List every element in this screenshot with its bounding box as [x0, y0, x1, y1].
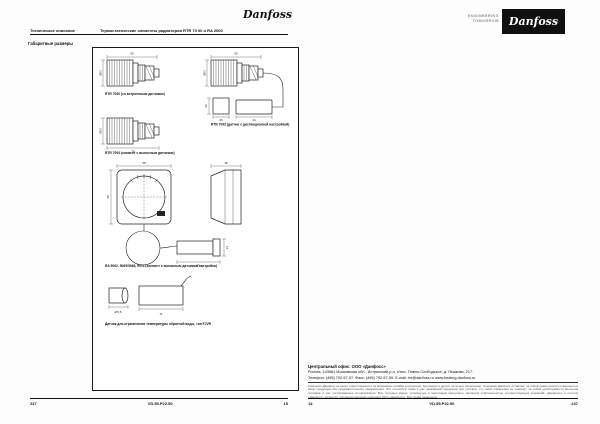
figure-return-sensor-caption: Датчик для ограничения температуры обрат… — [105, 322, 212, 326]
dim-label: Ø 5,5 — [115, 310, 122, 314]
figure-rtr7094-drawing: Ø53 74 — [98, 118, 159, 154]
danfoss-logo: Danfoss — [243, 8, 292, 21]
page-number: 247 — [571, 401, 578, 406]
drawing-frame: 80 Ø53 RTR 7090 (со встроенным датчиком)… — [92, 47, 299, 391]
dim-label: 58 — [142, 161, 146, 165]
figure-ra5060-caption: RA 5062, 5065/5068, 5074 (элемент с выно… — [105, 264, 217, 268]
office-address-block: Центральный офис: ООО «Данфосс» Россия, … — [308, 364, 578, 381]
dimension-drawings: 80 Ø53 RTR 7090 (со встроенным датчиком)… — [93, 48, 296, 388]
dim-label: 26 — [219, 118, 223, 122]
sensor-wire — [181, 276, 191, 286]
dim-label: 80 — [130, 52, 134, 56]
dim-label: 44 — [252, 118, 256, 122]
remote-adjuster-box — [236, 100, 272, 114]
sensor-housing — [139, 286, 183, 305]
brand-block: ENGINEERING TOMORROW Danfoss — [468, 9, 565, 34]
doc-code: VD.55.P22.50 — [429, 401, 454, 406]
left-page-footer: 247 VD.55.P22.50 15 — [30, 398, 288, 406]
dim-label: 58 — [106, 195, 110, 199]
figure-rtr7092-drawing: 80 Ø53 — [202, 52, 263, 86]
figure-rtr7090-drawing: 80 Ø53 — [98, 52, 159, 86]
figure-rtr7092-caption: RTR 7092 (датчик с дистанционной настрой… — [211, 123, 289, 127]
office-contacts: Телефон: (495) 792-57-57. Факс: (495) 79… — [308, 376, 578, 382]
dial-logo-mark — [157, 211, 165, 216]
doc-type-label: Техническое описание — [30, 28, 75, 33]
dim-label: 21 — [225, 246, 229, 250]
page-number: 247 — [30, 401, 37, 406]
valve-body — [213, 98, 229, 114]
dim-label: 71 — [159, 312, 163, 316]
page-number: 14 — [308, 401, 312, 406]
figure-rtr7094-caption: RTR 7094 (элемент с выносным датчиком) — [105, 151, 175, 155]
figure-return-sensor-drawing: Ø 5,5 71 — [109, 276, 191, 316]
dim-label: Ø53 — [202, 70, 206, 76]
danfoss-logo: Danfoss — [509, 15, 558, 28]
dim-label: Ø53 — [98, 128, 102, 134]
office-divider — [308, 382, 578, 383]
dim-label: 80 — [234, 52, 238, 56]
capillary-coil — [126, 231, 160, 265]
right-page-footer: 14 VD.55.P22.50 247 — [308, 398, 578, 406]
engineering-tomorrow-tagline: ENGINEERING TOMORROW — [468, 14, 499, 24]
figure-ra5060-drawing: 58 58 48 63 21 — [106, 161, 241, 267]
dimensions-section-label: Габаритные размеры — [28, 41, 73, 46]
danfoss-logo-box: Danfoss — [502, 9, 565, 34]
page-number: 15 — [284, 401, 288, 406]
dim-label: Ø53 — [98, 70, 102, 76]
dim-label: 28 — [204, 104, 208, 108]
remote-sensor — [177, 241, 213, 254]
figure-rtr7090-caption: RTR 7090 (со встроенным датчиком) — [105, 92, 165, 96]
page-title: Термостатические элементы радиаторов RTR… — [100, 28, 223, 33]
doc-code: VD.55.P22.50 — [148, 401, 173, 406]
header-rule — [30, 34, 288, 35]
dim-label: 48 — [224, 161, 228, 165]
tagline-line2: TOMORROW — [468, 19, 499, 24]
